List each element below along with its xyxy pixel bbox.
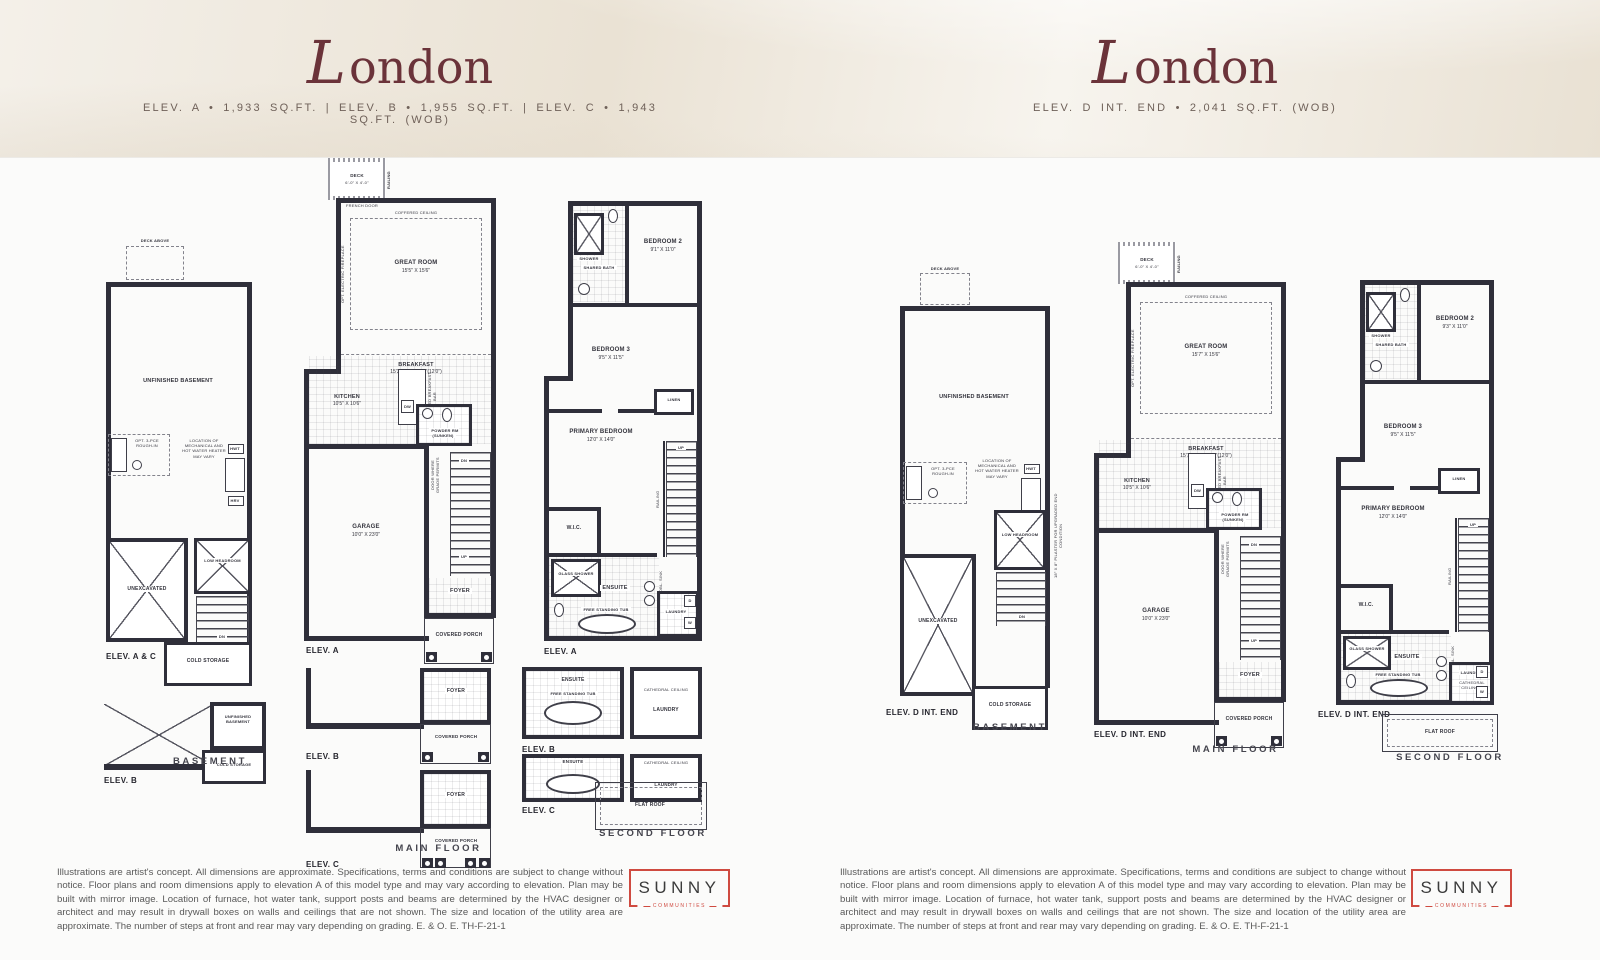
linen-label: LINEN (1440, 476, 1478, 481)
wall (106, 282, 252, 287)
ensuite-label: ENSUITE (1382, 654, 1432, 661)
stairs-dn-label: DN (210, 634, 234, 639)
deck-outline: DECK 6'-0" X 4'-0" (1118, 242, 1176, 284)
glass-shower-label: GLASS SHOWER (1345, 646, 1389, 651)
foyer-label: FOYER (1226, 672, 1274, 679)
right-title-block: London ELEV. D INT. END • 2,041 SQ.FT. (… (905, 32, 1465, 114)
logo-tagline: COMMUNITIES (637, 903, 722, 909)
shared-bath-label: SHARED BATH (1370, 342, 1412, 347)
left-main-elev-c-variant: FOYER COVERED PORCH ELEV. C (298, 768, 503, 878)
primary-bedroom-label: PRIMARY BEDROOM 12'0" X 14'0" (1356, 506, 1430, 520)
covered-porch-label: COVERED PORCH (430, 734, 482, 740)
bedroom2-label: BEDROOM 2 9'1" X 11'0" (633, 239, 693, 253)
porch-post (478, 752, 489, 762)
washer-box: W (684, 617, 696, 629)
header-band: London ELEV. A • 1,933 SQ.FT. | ELEV. B … (0, 0, 1600, 158)
right-elevation-subtitle: ELEV. D INT. END • 2,041 SQ.FT. (WOB) (905, 102, 1465, 114)
stair-railing (1455, 518, 1457, 632)
freestanding-tub (544, 701, 602, 725)
laundry-label: LAUNDRY (642, 707, 690, 714)
deck-railing-label: RAILING (1176, 248, 1181, 280)
wall (1045, 306, 1050, 688)
great-room-label: GREAT ROOM 15'7" X 15'6" (1156, 344, 1256, 358)
kitchen-label: KITCHEN 10'5" X 10'6" (1106, 478, 1168, 492)
elev-c-label: ELEV. C (522, 806, 555, 815)
fireplace-label: OPT. ELECTRIC FIREPLACE (1130, 326, 1135, 390)
vanity-sink (644, 581, 655, 592)
stairs-dn-label: DN (1244, 542, 1264, 547)
flat-roof-label: FLAT ROOF (1397, 729, 1483, 736)
foyer-room (420, 770, 491, 828)
deck-dim: 6'-0" X 4'-0" (1135, 264, 1158, 269)
door-grade-label: DOOR WHERE GRADE PERMITS (1220, 536, 1230, 582)
foyer-floor (429, 578, 491, 613)
great-room-opening (1131, 438, 1281, 439)
mech-note-label: LOCATION OF MECHANICAL AND HOT WATER HEA… (974, 458, 1020, 479)
low-headroom-label: LOW HEADROOM (996, 532, 1044, 537)
glass-shower-label: GLASS SHOWER (553, 571, 599, 576)
vanity-sink (1436, 656, 1447, 667)
stair-railing (663, 441, 665, 557)
elev-b-label: ELEV. B (104, 776, 137, 785)
powder-room-label: POWDER RM (SUNKEN) (418, 428, 470, 438)
wall (304, 444, 429, 449)
elev-d-label: ELEV. D INT. END (1318, 710, 1390, 719)
flat-roof-label: FLAT ROOF (606, 802, 694, 809)
bedroom3-label: BEDROOM 3 9'5" X 11'5" (578, 347, 644, 361)
porch-post (481, 652, 492, 662)
wall (1094, 528, 1219, 533)
sink-fixture (928, 488, 938, 498)
wall (306, 770, 311, 832)
left-basement-elev-b-variant: UNFINISHED BASEMENT COLD STORAGE ELEV. B (98, 700, 270, 790)
foyer-floor (1219, 662, 1281, 697)
kitchen-label: KITCHEN 10'5" X 10'6" (316, 394, 378, 408)
basement-caption: BASEMENT (150, 756, 270, 767)
door-grade-label: DOOR WHERE GRADE PERMITS (430, 452, 440, 498)
left-model-title: London (120, 32, 680, 94)
elev-a-label: ELEV. A (306, 646, 339, 655)
basement-caption: BASEMENT (950, 722, 1070, 733)
shower-label: SHOWER (574, 256, 604, 261)
wall (597, 507, 601, 557)
elev-d-label: ELEV. D INT. END (886, 708, 958, 717)
wall (304, 636, 429, 641)
railing-label: RAILING (1447, 556, 1452, 596)
hrv-box: HRV (228, 496, 244, 506)
main-floor-caption: MAIN FLOOR (376, 843, 501, 854)
vanity-sink (644, 595, 655, 606)
porch-post (422, 752, 433, 762)
covered-porch-label: COVERED PORCH (1222, 716, 1276, 723)
elev-b-label: ELEV. B (306, 752, 339, 761)
deck-railing-label: RAILING (386, 164, 391, 196)
left-title-block: London ELEV. A • 1,933 SQ.FT. | ELEV. B … (120, 32, 680, 126)
cathedral-ceiling-label: CATHEDRAL CEILING (640, 760, 692, 765)
deck-above-label: DECK ABOVE (920, 266, 970, 271)
deck-label: DECK (1140, 257, 1154, 263)
low-headroom-area (994, 510, 1046, 570)
freestanding-tub (578, 614, 636, 634)
shower-label: SHOWER (1366, 333, 1396, 338)
deck-above-label: DECK ABOVE (126, 238, 184, 243)
low-headroom-area (194, 538, 251, 594)
linen-label: LINEN (656, 397, 692, 402)
cathedral-ceiling-label: CATHEDRAL CEILING (642, 687, 690, 692)
powder-room-label: POWDER RM (SUNKEN) (1208, 512, 1260, 522)
unfinished-basement-room (210, 702, 266, 750)
flat-roof-outline: FLAT ROOF (595, 782, 707, 830)
stairs-up-label: UP (454, 554, 474, 559)
freestanding-tub (546, 774, 600, 794)
unfinished-basement-label: UNFINISHED BASEMENT (136, 378, 220, 385)
tub-fixture (111, 438, 127, 472)
dryer-box: D (1476, 666, 1488, 678)
second-floor-caption: SECOND FLOOR (1380, 752, 1520, 763)
foyer-label: FOYER (434, 688, 478, 695)
ensuite-label: ENSUITE (546, 759, 600, 765)
elev-d-label: ELEV. D INT. END (1094, 730, 1166, 739)
tub-label: FREE STANDING TUB (542, 691, 604, 696)
coffered-ceiling-label: COFFERED CEILING (1166, 294, 1246, 299)
left-elevation-subtitle: ELEV. A • 1,933 SQ.FT. | ELEV. B • 1,955… (120, 102, 680, 126)
stairs-up-label: UP (1244, 638, 1264, 643)
coffered-ceiling-label: COFFERED CEILING (376, 210, 456, 215)
logo-tagline: COMMUNITIES (1419, 903, 1504, 909)
powder-toilet (1232, 492, 1242, 506)
laundry-room (630, 667, 702, 739)
wall (618, 409, 658, 413)
unfinished-basement-label: UNFINISHED BASEMENT (932, 394, 1016, 401)
hwt-box: HWT (228, 444, 244, 454)
stairs-up-label: UP (671, 445, 691, 450)
powder-sink (422, 408, 433, 419)
furnace-box (1021, 478, 1041, 512)
wall (1389, 584, 1393, 632)
ensuite-label: ENSUITE (546, 677, 600, 684)
great-room-label: GREAT ROOM 15'5" X 15'6" (366, 260, 466, 274)
logo-wordmark: SUNNY (1420, 878, 1502, 898)
deck-inner: DECK 6'-0" X 4'-0" (332, 162, 382, 196)
french-door-label: FRENCH DOOR (342, 203, 382, 208)
pilaster-note-label: 18" X 8" PILASTER FOR UPGRADED END CONDI… (1053, 488, 1063, 584)
wall (900, 306, 1050, 311)
right-second-floor-plan: SHOWER SHARED BATH BEDROOM 2 9'3" X 11'0… (1308, 272, 1503, 754)
wall (1336, 486, 1394, 490)
wall (625, 201, 629, 305)
porch-post (426, 652, 437, 662)
shared-bath-label: SHARED BATH (578, 265, 620, 270)
freestanding-tub (1370, 679, 1428, 697)
dryer-box: D (684, 595, 696, 607)
deck-above-outline (920, 273, 970, 305)
bedroom2-label: BEDROOM 2 9'3" X 11'0" (1425, 316, 1485, 330)
unexcavated-label: UNEXCAVATED (108, 586, 186, 593)
wall (1126, 282, 1286, 287)
wall (306, 668, 311, 728)
elev-a-label: ELEV. A (544, 647, 577, 656)
wall (306, 827, 424, 833)
stairs-dn-label: DN (1010, 614, 1034, 619)
tub-label: FREE STANDING TUB (576, 607, 636, 612)
powder-toilet (442, 408, 452, 422)
deck-dim: 6'-0" X 4'-0" (345, 180, 368, 185)
covered-porch-label: COVERED PORCH (432, 632, 486, 639)
glass-shower (1343, 636, 1391, 670)
deck-inner: DECK 6'-0" X 4'-0" (1122, 246, 1172, 280)
dishwasher-box: DW (401, 400, 414, 413)
bath-toilet (1400, 288, 1410, 302)
shower-stall (574, 213, 604, 255)
wic-label: W.I.C. (554, 525, 594, 532)
left-disclaimer-text: Illustrations are artist's concept. All … (57, 866, 623, 933)
rough-in-label: OPT. 3-PCE ROUGH-IN (922, 466, 964, 476)
right-main-floor-plan: DECK 6'-0" X 4'-0" RAILING COFFERED CEIL… (1088, 240, 1293, 756)
cold-storage-label: COLD STORAGE (168, 658, 248, 665)
second-floor-caption: SECOND FLOOR (583, 828, 723, 839)
ensuite-toilet (1346, 674, 1356, 688)
laundry-label: LAUNDRY (658, 609, 694, 614)
stairs-dn-label: DN (454, 458, 474, 463)
bedroom3-label: BEDROOM 3 9'5" X 11'5" (1370, 424, 1436, 438)
wall (1341, 584, 1393, 588)
ensuite-label: ENSUITE (590, 585, 640, 592)
unexcavated-area (900, 554, 976, 696)
wall (306, 723, 424, 729)
elev-ac-label: ELEV. A & C (106, 652, 156, 661)
deck-outline: DECK 6'-0" X 4'-0" (328, 158, 386, 200)
bath-toilet (608, 209, 618, 223)
left-basement-plan: DECK ABOVE UNFINISHED BASEMENT LOCATION … (98, 238, 270, 696)
dishwasher-box: DW (1191, 484, 1204, 497)
powder-sink (1212, 492, 1223, 503)
foyer-label: FOYER (436, 588, 484, 595)
wall (1365, 380, 1494, 384)
ensuite-toilet (554, 603, 564, 617)
foyer-label: FOYER (434, 792, 478, 799)
mech-note-label: LOCATION OF MECHANICAL AND HOT WATER HEA… (180, 438, 228, 459)
stairs-up-label: UP (1463, 522, 1483, 527)
tub-fixture (906, 466, 922, 500)
unfinished-basement-label: UNFINISHED BASEMENT (214, 714, 262, 724)
sink-fixture (132, 460, 142, 470)
fireplace-label: OPT. ELECTRIC FIREPLACE (340, 242, 345, 306)
wall (491, 198, 496, 618)
tub-label: FREE STANDING TUB (1368, 672, 1428, 677)
low-headroom-label: LOW HEADROOM (196, 558, 249, 563)
great-room-opening (341, 354, 491, 355)
wall (549, 507, 601, 511)
left-second-floor-plan: SHOWER SHARED BATH BEDROOM 2 9'1" X 11'0… (518, 193, 708, 663)
sunny-logo: SUNNY COMMUNITIES (1411, 869, 1512, 907)
wic-label: W.I.C. (1346, 602, 1386, 609)
wall (1281, 282, 1286, 702)
cold-storage-label: COLD STORAGE (974, 702, 1046, 709)
second-floor-stairs (666, 441, 697, 557)
wall (697, 201, 702, 641)
garage-label: GARAGE 10'0" X 23'0" (326, 524, 406, 538)
wall (1094, 720, 1219, 725)
flat-roof-outline: FLAT ROOF (1382, 714, 1498, 752)
bath-sink (578, 283, 590, 295)
right-basement-plan: DECK ABOVE UNFINISHED BASEMENT LOCATION … (876, 266, 1066, 736)
deck-label: DECK (350, 173, 364, 179)
railing-label: RAILING (655, 479, 660, 519)
rough-in-label: OPT. 3-PCE ROUGH-IN (126, 438, 168, 448)
right-model-title: London (905, 32, 1465, 94)
main-floor-caption: MAIN FLOOR (1173, 744, 1298, 755)
hwt-box: HWT (1024, 464, 1040, 474)
sunny-logo: SUNNY COMMUNITIES (629, 869, 730, 907)
deck-above-outline (126, 246, 184, 280)
wall (544, 409, 602, 413)
wall (1489, 280, 1494, 705)
wall (573, 303, 702, 307)
right-disclaimer-text: Illustrations are artist's concept. All … (840, 866, 1406, 933)
wall (1417, 280, 1421, 382)
shower-stall (1366, 292, 1396, 332)
left-main-elev-b-variant: FOYER COVERED PORCH ELEV. B (298, 666, 503, 768)
second-floor-stairs (1458, 518, 1489, 632)
primary-bedroom-label: PRIMARY BEDROOM 12'0" X 14'0" (564, 429, 638, 443)
furnace-box (225, 458, 245, 492)
bath-sink (1370, 360, 1382, 372)
vanity-sink (1436, 670, 1447, 681)
foyer-room (420, 668, 491, 724)
garage-label: GARAGE 10'0" X 23'0" (1116, 608, 1196, 622)
logo-wordmark: SUNNY (638, 878, 720, 898)
unexcavated-label: UNEXCAVATED (902, 618, 974, 625)
left-second-elev-b-variant: ENSUITE FREE STANDING TUB CATHEDRAL CEIL… (518, 665, 708, 757)
washer-box: W (1476, 686, 1488, 698)
left-main-floor-plan: DECK 6'-0" X 4'-0" RAILING FRENCH DOOR C… (298, 156, 503, 672)
